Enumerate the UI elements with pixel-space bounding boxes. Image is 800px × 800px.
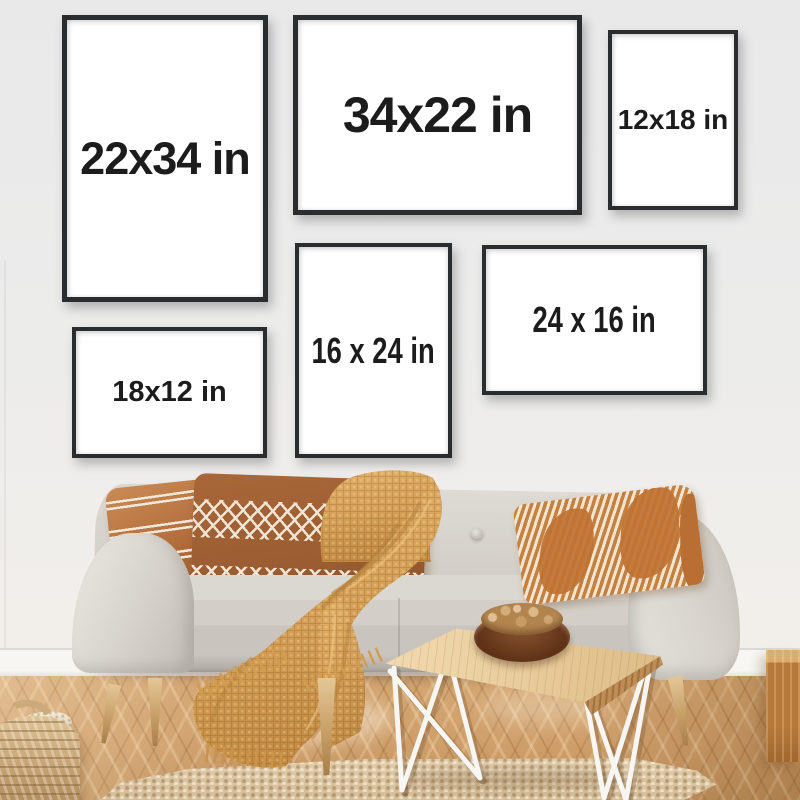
frame-size-label: 34x22 in	[343, 86, 532, 144]
frame-16x24: 16 x 24 in	[295, 243, 452, 458]
pillow-leaf-motif	[619, 485, 682, 580]
frame-12x18: 12x18 in	[608, 30, 738, 210]
sofa-seat-seam	[398, 598, 400, 666]
frame-24x16: 24 x 16 in	[482, 245, 707, 395]
frame-22x34: 22x34 in	[62, 15, 268, 302]
frame-size-label: 18x12 in	[112, 376, 226, 409]
pillow-diamond-band	[192, 499, 426, 545]
frame-18x12: 18x12 in	[72, 327, 267, 458]
frame-size-label: 12x18 in	[618, 104, 729, 136]
pillow-leaf-motif	[535, 504, 597, 598]
sofa-armrest-left	[72, 533, 194, 673]
frame-size-label: 22x34 in	[80, 133, 250, 185]
bowl-of-nuts	[481, 603, 563, 635]
frame-size-label: 16 x 24 in	[312, 330, 435, 372]
wood-block-stool	[766, 650, 800, 762]
living-room-scene: 22x34 in 34x22 in 12x18 in 16 x 24 in 24…	[0, 0, 800, 800]
sofa-tuft-button	[471, 528, 483, 539]
frame-34x22: 34x22 in	[293, 15, 582, 215]
floor-light-reflection	[200, 695, 390, 743]
frame-size-label: 24 x 16 in	[533, 299, 656, 341]
wall-panel-line	[4, 260, 6, 652]
table-shadow	[400, 770, 640, 788]
